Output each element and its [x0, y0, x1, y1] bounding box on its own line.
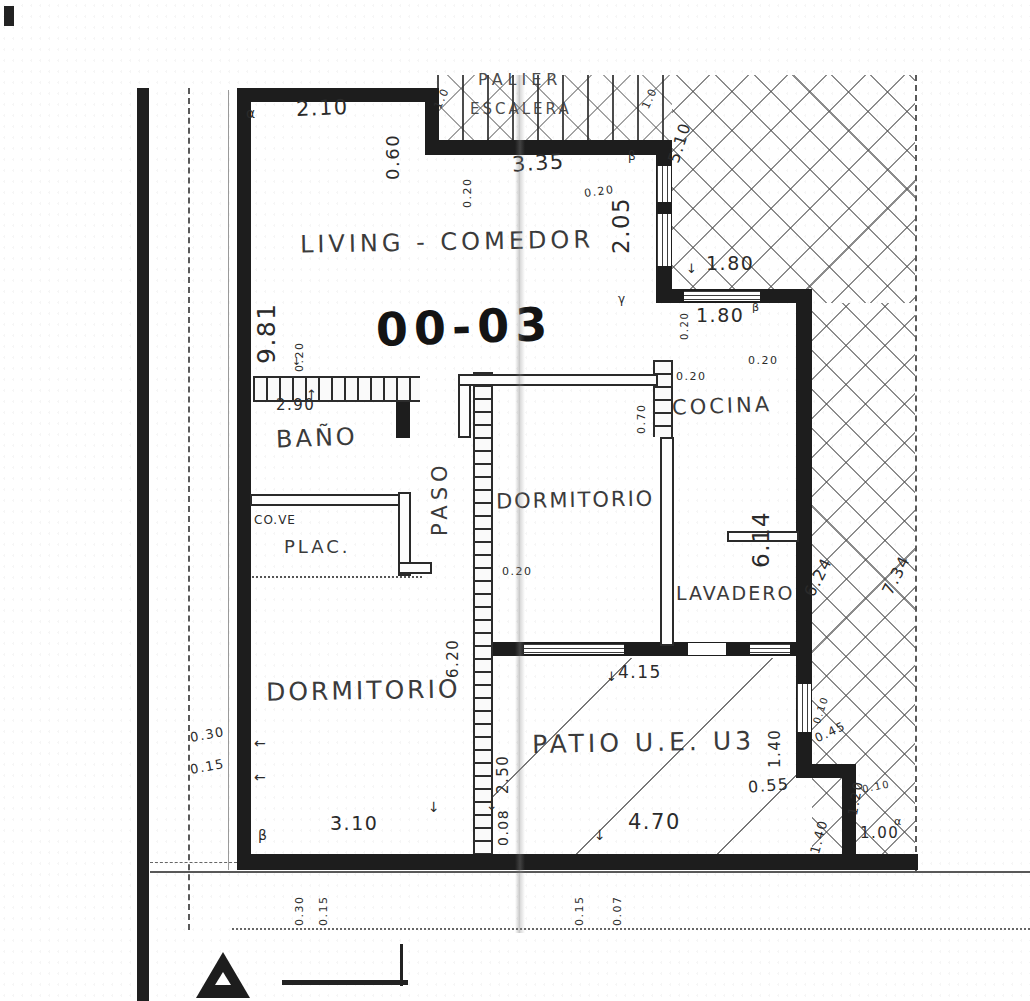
dim-label: 0.15 [189, 757, 226, 776]
dim-label: 0.30 [294, 896, 305, 927]
dim-label: 2.10 [296, 97, 349, 120]
dim-label: 0.07 [612, 896, 623, 927]
dim-label: γ [618, 293, 627, 305]
left-extension-line [228, 90, 229, 870]
arrow-mark: ← [254, 736, 267, 750]
wall-left [237, 88, 251, 870]
dim-label: 0.20 [676, 371, 707, 382]
dim-label: α [894, 816, 903, 827]
window-living-1 [657, 166, 671, 202]
dim-label: 0.08 [496, 809, 510, 846]
arrow-mark: ← [254, 770, 267, 784]
dim-label: 0.70 [636, 404, 647, 435]
room-label-plac: PLAC. [284, 538, 351, 556]
plac-dotted-line [252, 576, 422, 578]
room-label-dormitorio-center: DORMITORIO [496, 489, 655, 513]
dim-label: 1.80 [696, 306, 744, 325]
partition-paso-ladder [473, 372, 493, 854]
room-label-cove: CO.VE [254, 514, 296, 526]
arrow-mark: ↓ [594, 828, 607, 842]
arrow-mark: ↓ [428, 800, 441, 814]
window-dormitorio-patio [524, 644, 624, 654]
wall-bath-jamb [396, 400, 410, 438]
dim-label: 3.35 [511, 151, 565, 176]
room-label-cocina: COCINA [672, 394, 773, 418]
room-label-dormitorio-sw: DORMITORIO [266, 676, 461, 704]
dim-label: 0.55 [747, 776, 790, 796]
window-living-2 [657, 214, 671, 266]
dim-label: 0.20 [680, 312, 690, 340]
dim-label: 9.81 [254, 302, 279, 364]
dim-label: 1.40 [768, 729, 783, 768]
unit-label: 00-03 [375, 301, 554, 353]
wall-dormitorio-cocina [660, 437, 674, 646]
window-lavadero-east [797, 684, 811, 732]
dim-label: 0.15 [574, 896, 585, 927]
room-label-living: LIVING - COMEDOR [300, 227, 594, 256]
floor-plan-scan: PALIER ESCALERA LIVING - COMEDOR BAÑO CO… [0, 0, 1030, 1001]
left-bottom-dash-line [150, 862, 237, 863]
section-line-v [400, 944, 403, 986]
room-label-lavadero: LAVADERO [676, 584, 794, 603]
dim-label: α [246, 106, 257, 120]
bottom-dotted-line [232, 928, 1030, 930]
dim-label: 4.70 [628, 812, 681, 833]
dim-label: 0.20 [502, 566, 533, 577]
dim-label: 0.60 [384, 134, 402, 180]
dim-label: 2.50 [496, 755, 511, 794]
left-margin-bar [137, 88, 149, 1001]
dim-label: 0.20 [462, 178, 473, 209]
dim-label: 0.30 [189, 725, 226, 744]
arrow-mark: ↓ [606, 670, 618, 683]
arrow-mark: ↓ [486, 798, 499, 812]
section-marker-a-inner [215, 972, 231, 985]
section-line-h [282, 980, 408, 985]
partition-cocina-ladder [653, 360, 673, 437]
dim-label: 0.15 [318, 896, 329, 927]
window-lavadero-patio [750, 644, 790, 654]
right-boundary-line [915, 75, 917, 872]
dim-label: 4.15 [618, 664, 662, 681]
room-label-escalera: ESCALERA [470, 102, 572, 117]
arrow-mark: ↓ [686, 262, 698, 275]
dim-label: 6.14 [750, 511, 773, 568]
section-marker-a [196, 952, 250, 998]
room-label-palier: PALIER [478, 72, 562, 88]
dim-label: 2.05 [610, 197, 633, 254]
bottom-dim-line [150, 871, 1030, 873]
room-label-paso: PASO [430, 460, 451, 536]
arrow-mark: ↑ [306, 388, 318, 401]
window-living-east [684, 291, 760, 301]
dim-label: β [258, 828, 268, 842]
wall-plac-foot [398, 562, 432, 574]
corner-scan-mark [4, 6, 14, 26]
dim-label: 6.20 [446, 639, 461, 678]
wall-dormitorio-north [458, 374, 658, 386]
dim-label: 1.80 [706, 254, 754, 273]
wall-patio-north [473, 642, 796, 656]
dim-label: β [628, 150, 637, 162]
dim-label: 3.10 [330, 814, 378, 833]
arrow-mark: ↓ [292, 356, 303, 367]
wall-bottom [237, 854, 918, 870]
dim-label: 0.20 [748, 355, 779, 366]
room-label-patio: PATIO U.E. U3 [532, 728, 755, 757]
left-guide-line [188, 88, 190, 930]
room-label-bano: BAÑO [276, 425, 359, 452]
dim-label: 1.00 [860, 826, 899, 841]
door-lavadero-patio [688, 643, 726, 655]
wall-bath-south [250, 494, 400, 506]
dim-label: β [752, 302, 761, 313]
